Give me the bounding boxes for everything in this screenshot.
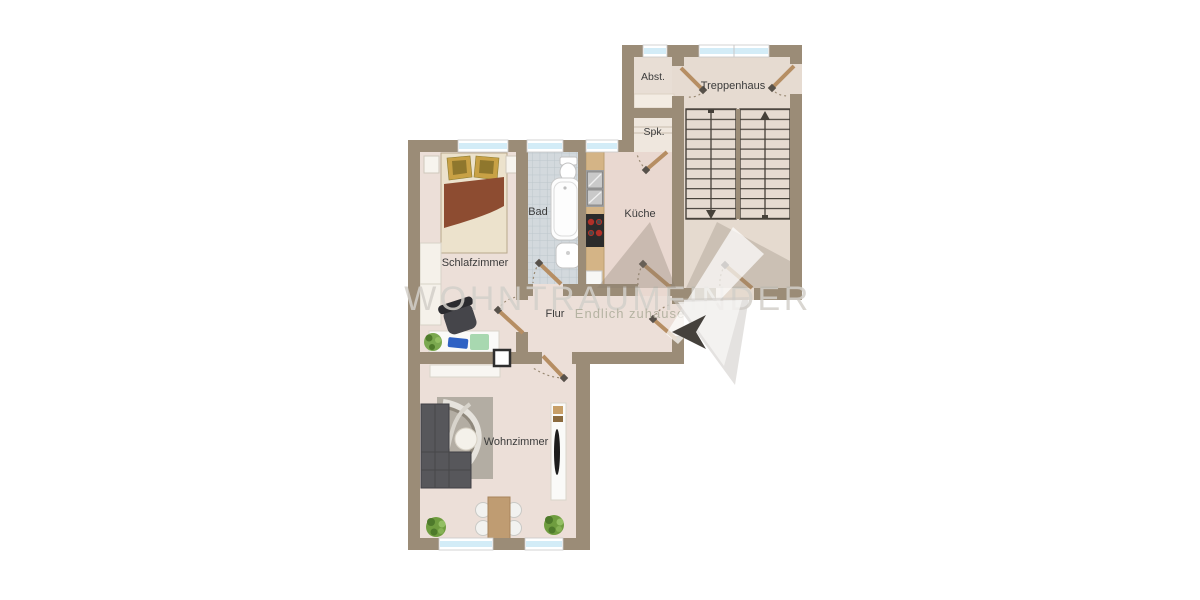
label-wohnzimmer: Wohnzimmer — [484, 436, 549, 448]
window-kueche — [586, 140, 618, 152]
double-bed — [441, 153, 507, 253]
label-speisekammer: Spk. — [643, 126, 664, 138]
bathtub — [551, 178, 580, 240]
staircase — [686, 109, 790, 219]
wall-segment — [408, 152, 420, 550]
wall-segment — [578, 152, 586, 284]
label-kueche: Küche — [624, 208, 655, 220]
window-bad — [527, 140, 563, 152]
wall-segment — [790, 94, 802, 300]
chimney-shaft — [494, 350, 510, 366]
wall-segment — [572, 352, 684, 364]
coffee-table — [455, 428, 477, 450]
shelf — [634, 94, 674, 108]
wall-segment — [790, 57, 802, 64]
wall-segment — [622, 57, 634, 152]
window-schlafzimmer — [458, 140, 508, 152]
dining-table — [488, 497, 510, 539]
window-wohnzimmer-left — [439, 538, 493, 550]
desk-pad — [470, 334, 489, 350]
wall-segment — [408, 352, 542, 364]
tv-sideboard — [551, 403, 566, 500]
toilet — [560, 157, 577, 181]
label-bad: Bad — [528, 206, 548, 218]
watermark-tagline-text: Endlich zuhause — [575, 306, 685, 321]
nightstand — [424, 156, 439, 173]
window-treppenhaus — [699, 45, 769, 57]
stove — [586, 214, 605, 247]
keyboard — [448, 337, 469, 349]
wall-segment — [672, 57, 684, 66]
window-wohnzimmer-right — [525, 538, 563, 550]
pillow-pattern — [479, 160, 494, 174]
label-treppenhaus: Treppenhaus — [701, 80, 766, 92]
tv — [554, 429, 560, 475]
wall-segment — [516, 152, 528, 300]
pillow-pattern — [452, 160, 467, 175]
plant — [544, 515, 564, 535]
wall-segment — [576, 364, 590, 538]
floorplan-svg: Abst. Treppenhaus Spk. Bad Küche Schlafz… — [0, 0, 1200, 600]
window-abstellraum — [643, 45, 667, 57]
label-schlafzimmer: Schlafzimmer — [442, 257, 509, 269]
wall-segment — [672, 96, 684, 288]
plant — [424, 333, 442, 351]
floorplan-canvas: Abst. Treppenhaus Spk. Bad Küche Schlafz… — [0, 0, 1200, 600]
label-abstellraum: Abst. — [641, 71, 665, 83]
sideboard — [430, 365, 500, 377]
kitchen-sink — [586, 170, 604, 207]
wall-segment — [516, 332, 528, 352]
stair-divider — [736, 109, 740, 219]
wash-basin — [556, 243, 580, 268]
plant — [426, 517, 446, 537]
